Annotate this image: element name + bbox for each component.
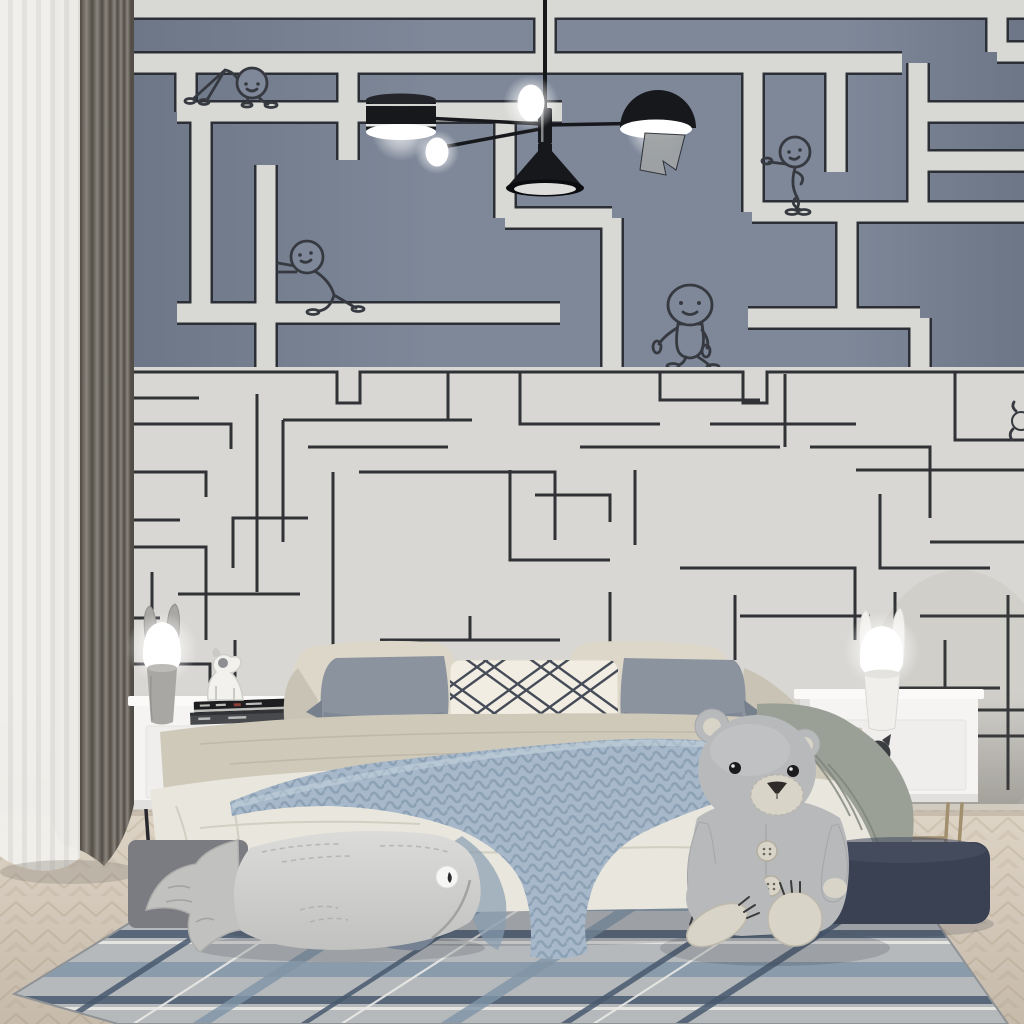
curtains (0, 0, 140, 884)
sphere-bulb-top (503, 75, 559, 131)
scene-canvas (0, 0, 1024, 1024)
bedroom-scene (0, 0, 1024, 1024)
sphere-bulb-small (415, 130, 459, 174)
